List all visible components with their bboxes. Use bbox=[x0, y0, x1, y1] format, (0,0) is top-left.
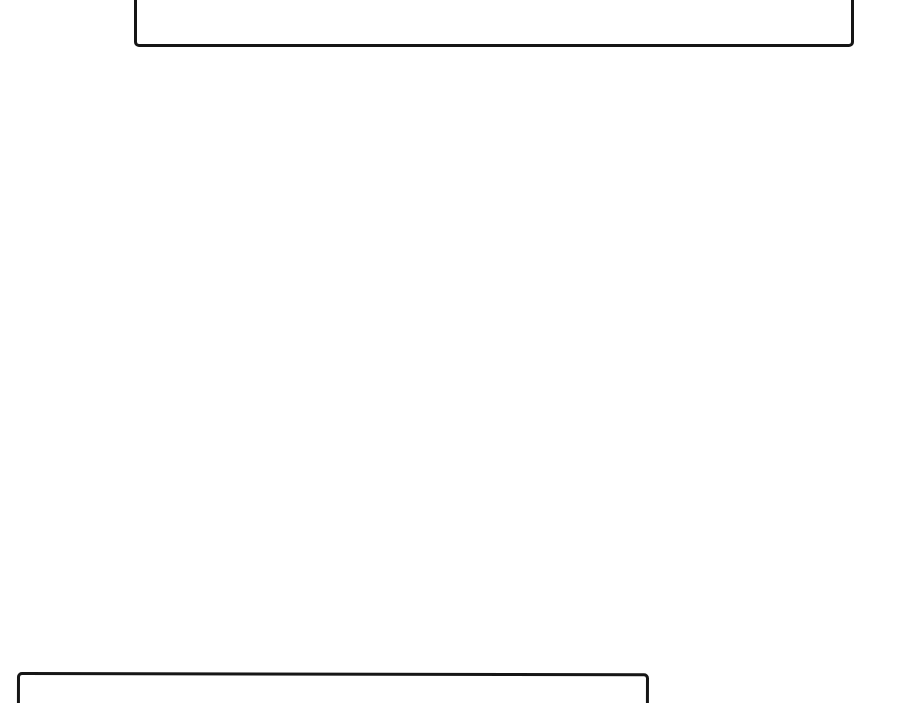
comic-panel-bottom bbox=[17, 672, 649, 703]
comic-page bbox=[0, 0, 900, 703]
comic-panel-top bbox=[134, 0, 854, 47]
